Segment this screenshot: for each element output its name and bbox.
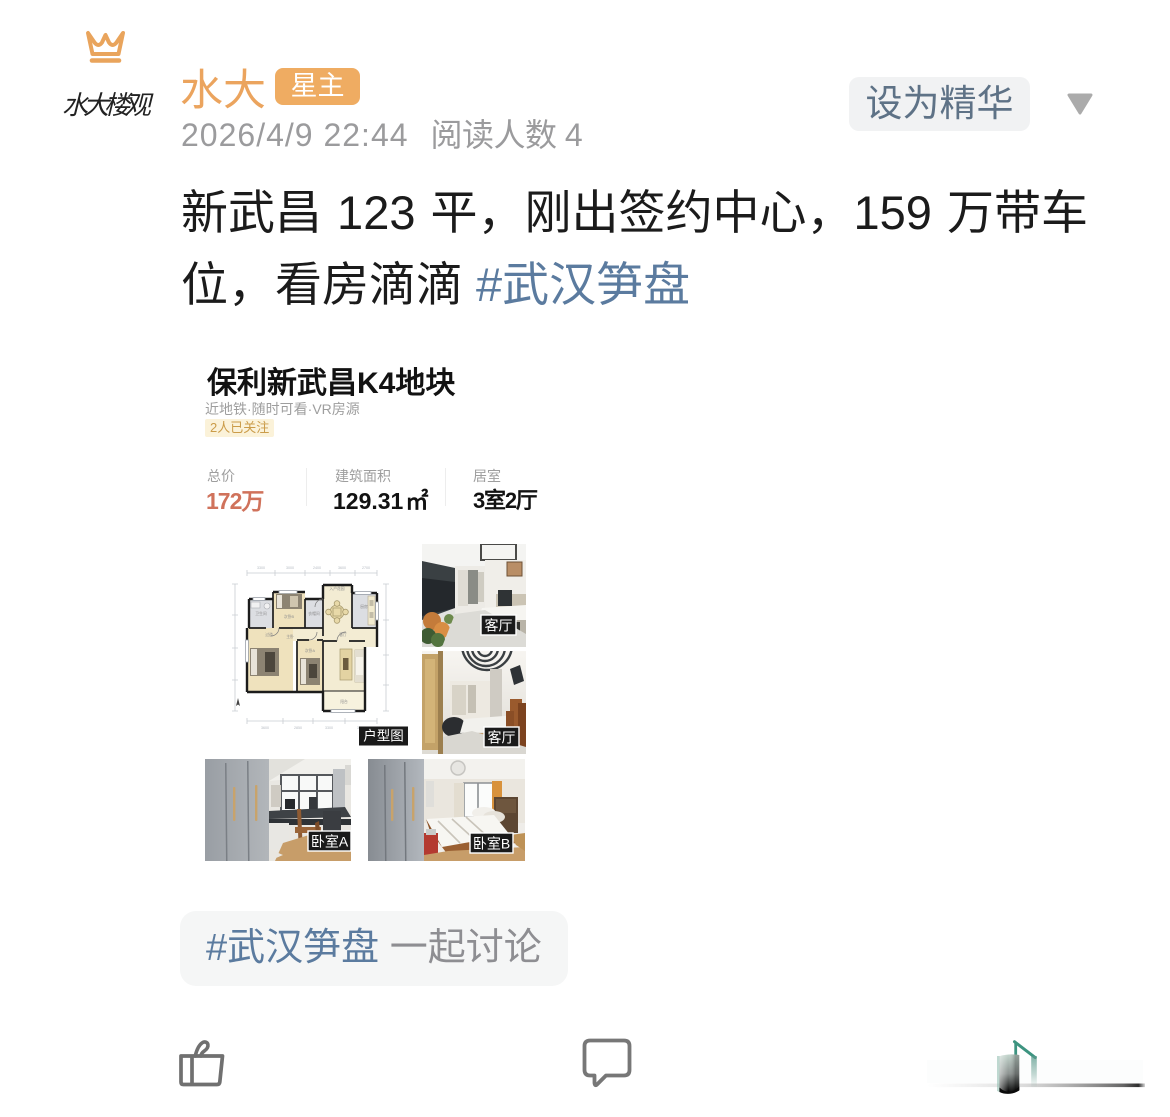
svg-text:2700: 2700 — [362, 566, 370, 570]
svg-text:客厅: 客厅 — [488, 730, 516, 746]
svg-text:3600: 3600 — [261, 726, 269, 730]
svg-text:3600: 3600 — [338, 566, 346, 570]
svg-text:2400: 2400 — [313, 566, 321, 570]
svg-text:卫生间: 卫生间 — [255, 611, 267, 616]
svg-text:次卧B: 次卧B — [284, 614, 295, 619]
svg-text:3000: 3000 — [286, 566, 294, 570]
svg-text:卧室B: 卧室B — [473, 836, 510, 852]
svg-text:入户花园: 入户花园 — [329, 586, 344, 591]
svg-text:2850: 2850 — [294, 726, 302, 730]
svg-text:3300: 3300 — [257, 566, 265, 570]
svg-text:主卧: 主卧 — [286, 634, 294, 639]
svg-text:卧室A: 卧室A — [311, 834, 349, 850]
svg-text:3300: 3300 — [325, 726, 333, 730]
svg-text:过道: 过道 — [265, 632, 273, 637]
svg-text:户型图: 户型图 — [363, 728, 404, 744]
svg-text:客厅: 客厅 — [485, 618, 513, 634]
svg-text:厨房: 厨房 — [360, 604, 368, 609]
svg-text:衣帽间: 衣帽间 — [308, 611, 320, 616]
svg-text:次卧A: 次卧A — [305, 648, 316, 653]
svg-text:阳台: 阳台 — [340, 699, 348, 704]
svg-text:客厅: 客厅 — [339, 632, 347, 637]
